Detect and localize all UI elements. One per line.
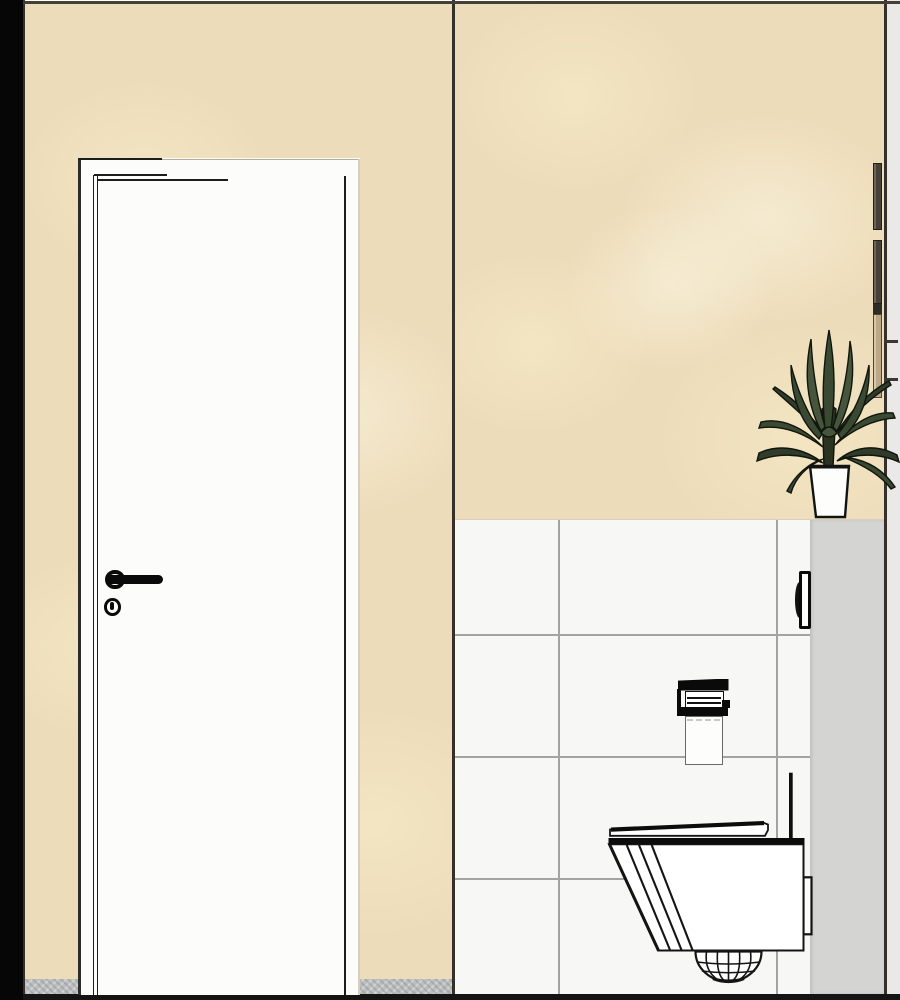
interior-door[interactable] [78, 158, 360, 997]
grout-line-horizontal [455, 634, 811, 636]
wall-panel-joint [873, 304, 882, 314]
paper-crease [687, 719, 720, 721]
seat-hinge-bar [609, 838, 805, 844]
door-leaf-hinge-line [93, 175, 98, 995]
roll-stripe [687, 697, 721, 699]
recess-side-wall [810, 520, 884, 994]
wall-hung-toilet[interactable] [600, 765, 815, 987]
ceiling-edge-line [23, 1, 900, 4]
flush-pipe [789, 773, 793, 839]
door-leaf-top-line [94, 174, 167, 176]
door-frame-left-edge [78, 158, 81, 997]
leaf [843, 457, 895, 489]
wall-corner-line [452, 0, 455, 994]
holder-bar [677, 707, 729, 717]
wall-panel-lower[interactable] [873, 240, 882, 304]
door-frame-right-edge [358, 159, 360, 997]
side-bracket [804, 877, 812, 934]
wall-dispenser[interactable] [799, 571, 811, 629]
keyhole-escutcheon[interactable] [104, 598, 121, 616]
hanging-paper [685, 716, 723, 765]
leaf [823, 330, 834, 429]
toilet-bowl [609, 844, 804, 950]
grout-line-horizontal [455, 756, 811, 758]
potted-plant[interactable] [753, 325, 900, 521]
roll-stripe [687, 702, 721, 704]
door-leaf-top-line [97, 179, 228, 181]
leaf [757, 448, 823, 463]
left-black-strip [0, 0, 23, 1000]
door-bottom-edge [78, 995, 360, 998]
keyhole-slot [110, 602, 114, 610]
bathroom-scene [0, 0, 900, 1000]
plant-pot[interactable] [810, 466, 849, 517]
toilet-paper-arm [677, 689, 681, 708]
leaf [837, 448, 899, 462]
drain-dome [696, 952, 762, 982]
wall-panel-upper[interactable] [873, 163, 882, 230]
door-handle[interactable] [109, 575, 163, 585]
door-frame-top-highlight [162, 159, 360, 160]
door-leaf-right-line [344, 176, 346, 995]
door-frame-top-edge [78, 158, 162, 160]
